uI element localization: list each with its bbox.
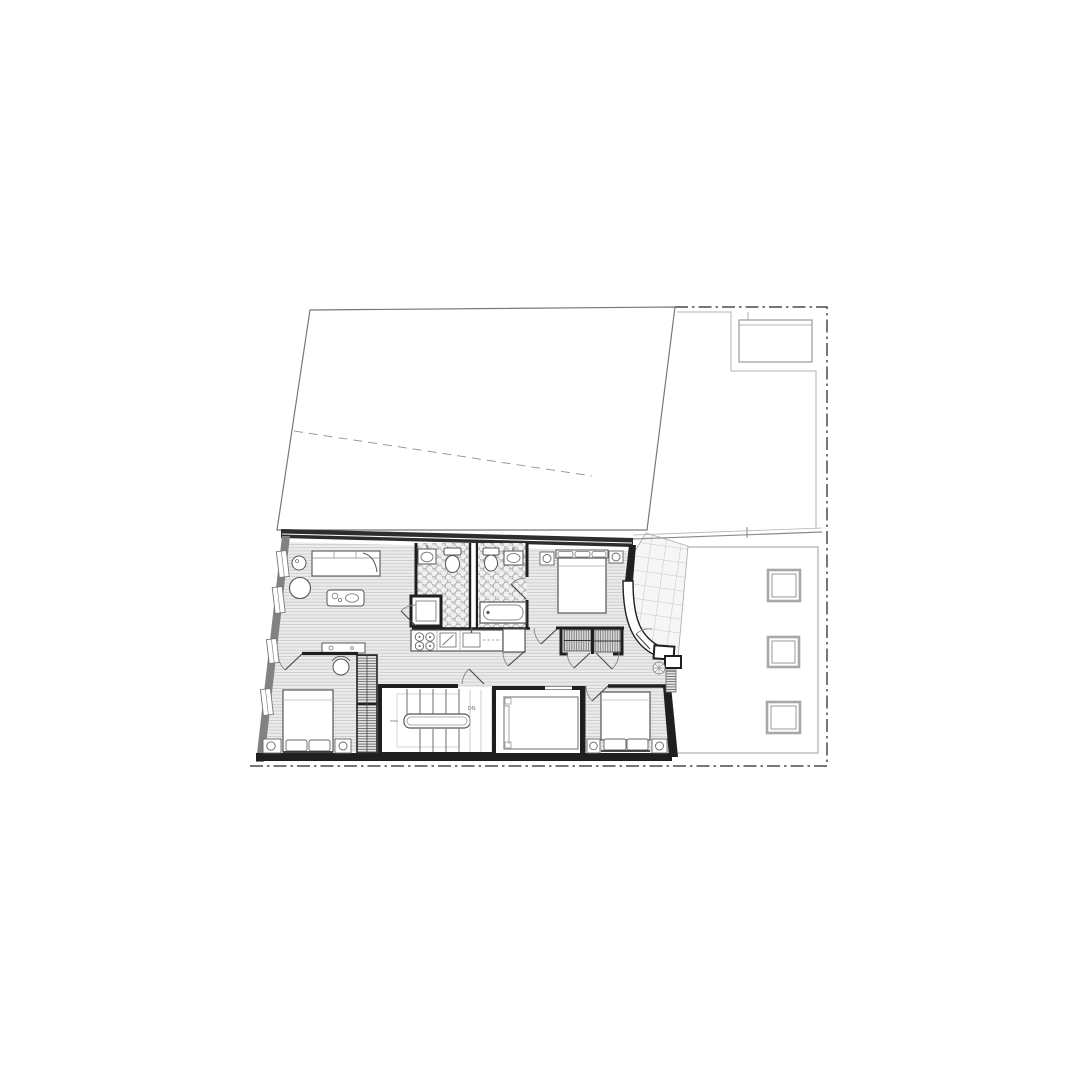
tall-cabinet bbox=[503, 629, 525, 652]
bathtub bbox=[480, 602, 526, 623]
shower-cubicle bbox=[411, 596, 441, 626]
toilet-1 bbox=[444, 548, 461, 573]
stairwell: DN bbox=[378, 685, 492, 756]
nightstand-master-left bbox=[540, 552, 554, 565]
desk bbox=[322, 643, 365, 653]
nightstand-3-left bbox=[587, 739, 600, 753]
round-table bbox=[290, 578, 311, 599]
stair-dn-label: DN bbox=[468, 706, 476, 712]
bathroom-2 bbox=[478, 543, 527, 628]
worktop bbox=[411, 630, 503, 651]
floor-plan-page: DN bbox=[0, 0, 1080, 1080]
floor-plan-drawing: DN bbox=[0, 0, 1080, 1080]
nightstand-3-right bbox=[652, 739, 667, 753]
bed-3 bbox=[601, 692, 650, 751]
wardrobe-wall bbox=[357, 655, 377, 753]
coffee-table bbox=[327, 590, 364, 606]
roof-light bbox=[739, 320, 812, 362]
elevator-car bbox=[504, 697, 578, 749]
nightstand-2-right bbox=[335, 739, 351, 753]
skylight-1 bbox=[768, 570, 800, 601]
elevator bbox=[492, 686, 584, 757]
plant bbox=[653, 662, 666, 675]
stair-handrail bbox=[404, 714, 470, 728]
window-3 bbox=[266, 639, 279, 664]
chopping-board bbox=[440, 633, 456, 647]
bed-2 bbox=[283, 690, 333, 752]
upper-roof bbox=[277, 307, 675, 530]
skylight-2 bbox=[768, 637, 799, 667]
entry-step-2 bbox=[665, 656, 681, 668]
sofa-daybed bbox=[312, 551, 380, 576]
nightstand-master-right bbox=[609, 551, 623, 563]
toilet-2 bbox=[483, 548, 499, 571]
roof-edge-line bbox=[633, 532, 822, 539]
master-bed bbox=[556, 550, 608, 613]
roof-edge-line-2 bbox=[633, 528, 822, 535]
roof-terrace-top-right bbox=[677, 312, 816, 529]
skylight-3 bbox=[767, 702, 800, 733]
round-stool bbox=[292, 556, 306, 570]
nightstand-2-left bbox=[263, 739, 281, 753]
roof-outline bbox=[277, 307, 675, 530]
entry-threshold bbox=[666, 670, 676, 692]
